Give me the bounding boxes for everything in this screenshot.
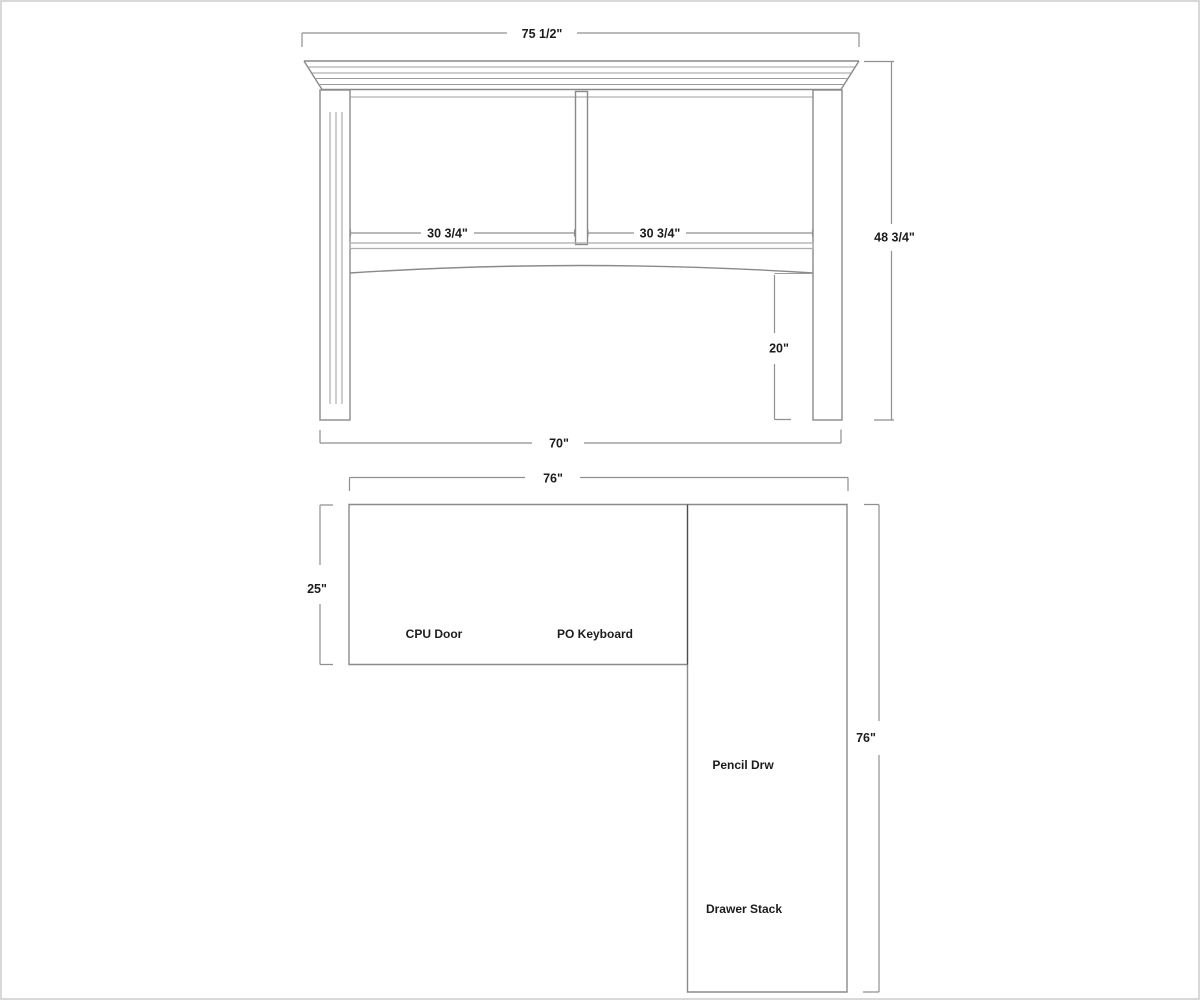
crown-molding [304, 61, 859, 90]
dim-right-length-text: 76" [856, 731, 876, 745]
center-divider [576, 92, 588, 245]
right-post [813, 90, 842, 420]
dim-return-depth-text: 25" [307, 582, 327, 596]
dim-return-depth: 25" [307, 505, 333, 665]
dim-overall-width-text: 75 1/2" [522, 27, 563, 41]
dim-overall-height: 48 3/4" [864, 62, 915, 421]
dim-knee-clearance-text: 20" [769, 342, 789, 356]
dim-base-width-text: 70" [549, 437, 569, 451]
cpu-door-label: CPU Door [406, 627, 463, 641]
dim-right-opening: 30 3/4" [588, 227, 813, 241]
elevation-view: 75 1/2" 30 3/4" 30 3/4" [302, 27, 915, 451]
dim-plan-top-width-text: 76" [543, 472, 563, 486]
dim-left-opening: 30 3/4" [351, 227, 575, 241]
drawer-stack-label: Drawer Stack [706, 902, 782, 916]
left-post-fluting [330, 112, 342, 404]
dim-base-width: 70" [320, 430, 841, 451]
blueprint-canvas: 75 1/2" 30 3/4" 30 3/4" [0, 0, 1200, 1000]
dim-right-opening-text: 30 3/4" [640, 227, 681, 241]
dim-knee-clearance: 20" [769, 275, 791, 420]
po-keyboard-label: PO Keyboard [557, 627, 633, 641]
dim-overall-width: 75 1/2" [302, 27, 859, 47]
plan-view: 76" CPU Door PO Keyboard Pencil Drw Draw… [307, 472, 879, 993]
dim-right-length: 76" [856, 505, 879, 993]
technical-drawing: 75 1/2" 30 3/4" 30 3/4" [2, 2, 1198, 998]
dim-overall-height-text: 48 3/4" [874, 231, 915, 245]
apron-arch [350, 266, 813, 274]
desk-top-outline [349, 505, 847, 993]
dim-plan-top-width: 76" [350, 472, 849, 492]
left-post [320, 90, 350, 420]
dim-left-opening-text: 30 3/4" [427, 227, 468, 241]
pencil-drawer-label: Pencil Drw [712, 758, 774, 772]
